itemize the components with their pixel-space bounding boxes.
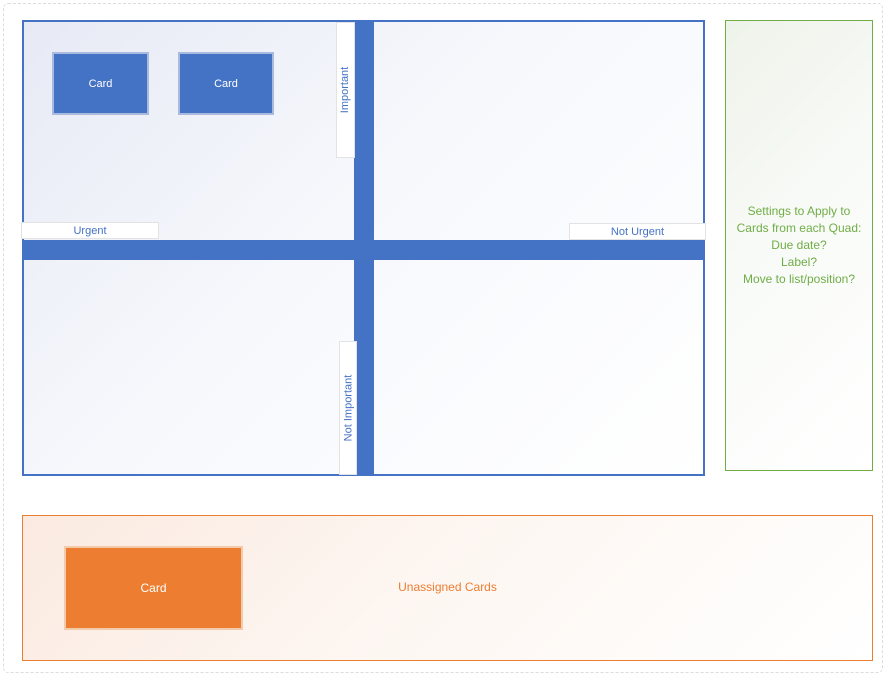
settings-line-5: Move to list/position? (726, 271, 872, 288)
axis-label-not-urgent: Not Urgent (569, 223, 706, 240)
axis-label-important: Important (336, 22, 355, 158)
settings-line-2: Cards from each Quad: (726, 220, 872, 237)
matrix-card-2-label: Card (214, 78, 238, 90)
matrix-card-1-label: Card (89, 78, 113, 90)
settings-panel-text: Settings to Apply to Cards from each Qua… (726, 203, 872, 288)
matrix-horizontal-axis-bar (22, 240, 705, 260)
axis-label-urgent-text: Urgent (73, 225, 106, 237)
settings-panel: Settings to Apply to Cards from each Qua… (725, 20, 873, 471)
settings-line-3: Due date? (726, 237, 872, 254)
axis-label-urgent: Urgent (21, 222, 159, 239)
matrix-card-2[interactable]: Card (178, 52, 274, 115)
unassigned-cards-title: Unassigned Cards (22, 580, 873, 594)
axis-label-not-important: Not Important (339, 341, 357, 475)
axis-label-not-urgent-text: Not Urgent (611, 226, 664, 238)
canvas: Important Not Important Urgent Not Urgen… (0, 0, 888, 678)
settings-line-1: Settings to Apply to (726, 203, 872, 220)
axis-label-important-text: Important (340, 67, 352, 113)
axis-label-not-important-text: Not Important (342, 375, 354, 442)
matrix-card-1[interactable]: Card (52, 52, 149, 115)
settings-line-4: Label? (726, 254, 872, 271)
